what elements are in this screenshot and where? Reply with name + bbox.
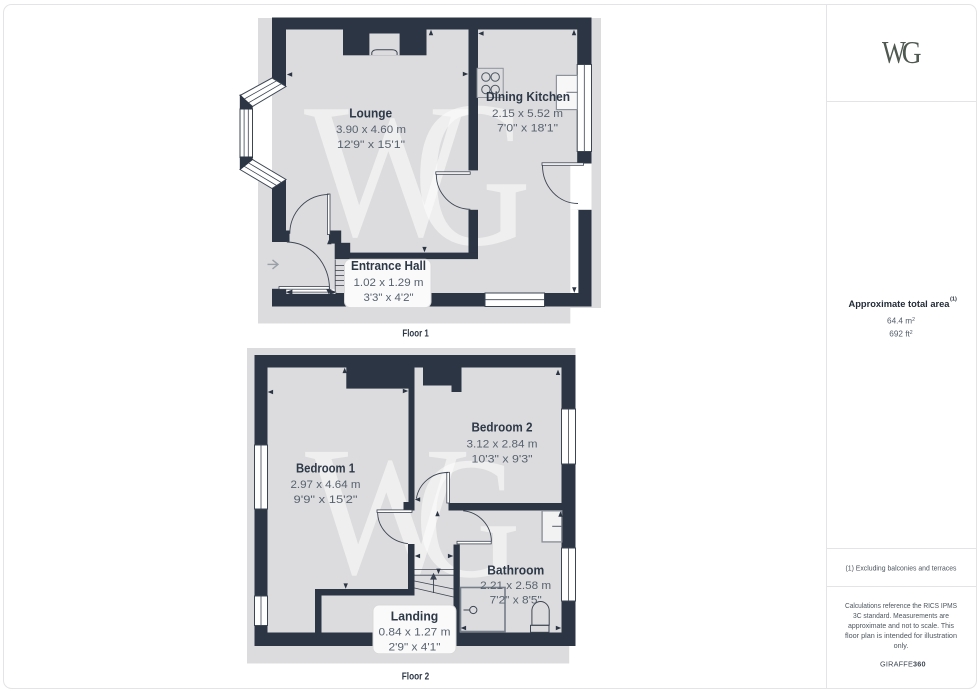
svg-text:2'9" x 4'1": 2'9" x 4'1" bbox=[389, 642, 441, 654]
svg-text:3.12 x 2.84 m: 3.12 x 2.84 m bbox=[467, 439, 538, 451]
svg-text:Floor 1: Floor 1 bbox=[402, 328, 429, 339]
svg-text:2.15 x 5.52 m: 2.15 x 5.52 m bbox=[492, 108, 563, 120]
svg-text:9'9" x 15'2": 9'9" x 15'2" bbox=[294, 494, 358, 506]
svg-text:3C standard. Measurements are: 3C standard. Measurements are bbox=[853, 611, 949, 620]
svg-text:approximate and not to scale.: approximate and not to scale. This bbox=[848, 621, 954, 630]
svg-text:(1) Excluding balconies and te: (1) Excluding balconies and terraces bbox=[846, 566, 957, 573]
svg-text:3'3" x 4'2": 3'3" x 4'2" bbox=[364, 292, 414, 304]
svg-text:only.: only. bbox=[894, 641, 909, 650]
svg-text:7'0" x 18'1": 7'0" x 18'1" bbox=[497, 123, 558, 135]
svg-text:Landing: Landing bbox=[391, 610, 439, 624]
svg-text:692 ft2: 692 ft2 bbox=[889, 330, 913, 339]
svg-text:3.90 x 4.60 m: 3.90 x 4.60 m bbox=[336, 124, 406, 136]
svg-text:Lounge: Lounge bbox=[349, 107, 392, 121]
svg-text:7'2" x 8'5": 7'2" x 8'5" bbox=[490, 595, 542, 607]
svg-text:(1): (1) bbox=[950, 297, 957, 303]
svg-text:12'9" x 15'1": 12'9" x 15'1" bbox=[337, 139, 405, 151]
svg-text:10'3" x 9'3": 10'3" x 9'3" bbox=[472, 454, 533, 466]
svg-text:GIRAFFE360: GIRAFFE360 bbox=[880, 660, 926, 669]
svg-text:G: G bbox=[902, 36, 922, 70]
svg-text:2.97 x 4.64 m: 2.97 x 4.64 m bbox=[291, 479, 361, 491]
svg-text:Bathroom: Bathroom bbox=[487, 564, 544, 578]
svg-text:floor plan is intended for ill: floor plan is intended for illustration bbox=[845, 631, 957, 640]
svg-text:64.4 m2: 64.4 m2 bbox=[887, 317, 915, 326]
svg-text:Entrance Hall: Entrance Hall bbox=[351, 259, 426, 273]
svg-text:Bedroom 2: Bedroom 2 bbox=[472, 421, 533, 435]
svg-text:1.02 x 1.29 m: 1.02 x 1.29 m bbox=[354, 277, 424, 289]
svg-text:Approximate total area: Approximate total area bbox=[849, 299, 951, 310]
svg-text:Calculations reference the RIC: Calculations reference the RICS IPMS bbox=[845, 601, 957, 610]
svg-text:Floor 2: Floor 2 bbox=[402, 671, 430, 682]
svg-text:Dining Kitchen: Dining Kitchen bbox=[486, 90, 570, 104]
svg-text:Bedroom 1: Bedroom 1 bbox=[296, 462, 355, 476]
svg-text:2.21 x 2.58 m: 2.21 x 2.58 m bbox=[480, 580, 551, 592]
svg-text:0.84 x 1.27 m: 0.84 x 1.27 m bbox=[379, 627, 451, 639]
